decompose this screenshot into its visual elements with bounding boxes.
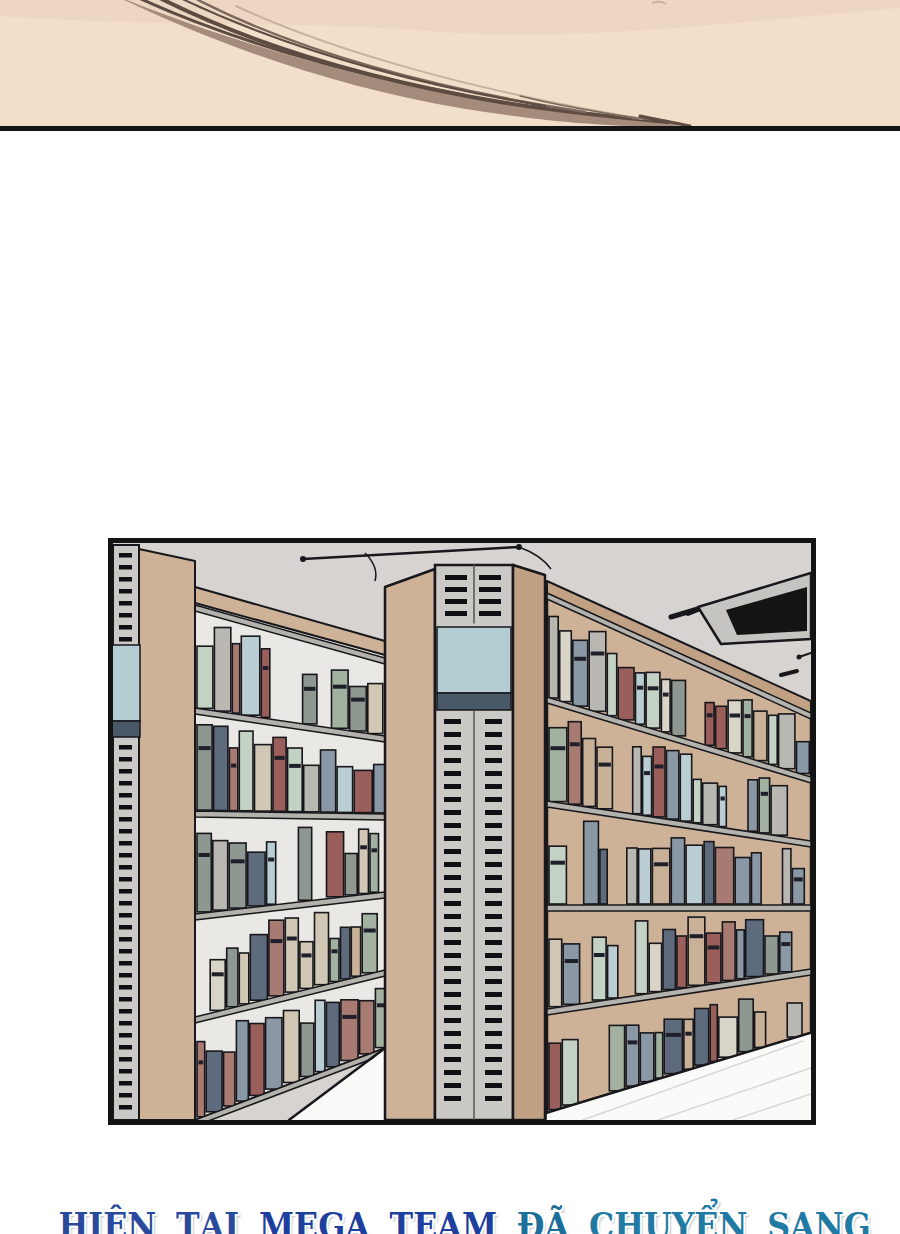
aisle-sign-left [113,645,140,721]
aisle-sign-center [437,627,511,693]
panel-face-closeup [0,0,900,131]
panel-border-line [0,126,900,131]
shelf-end-center [385,565,545,1120]
bookshelf-row-left [195,587,392,1120]
caption-word: ĐÃ [512,1204,573,1234]
comic-page: HIỆN TẠI MEGA TEAM ĐÃ CHUYỂN SANG [0,0,900,1234]
caption-word: TEAM [385,1204,501,1234]
face-closeup-illustration [0,0,900,131]
caption-word: MEGA [255,1204,375,1234]
panel-library [108,538,816,1125]
shelf-end-left [113,545,195,1120]
caption-word: TẠI [172,1204,244,1234]
caption-word: HIỆN [54,1204,161,1234]
caption-word: CHUYỂN [585,1204,752,1234]
library-bookshelves-illustration [113,543,811,1120]
caption-text: HIỆN TẠI MEGA TEAM ĐÃ CHUYỂN SANG [54,1204,846,1234]
caption-word: SANG [763,1204,875,1234]
